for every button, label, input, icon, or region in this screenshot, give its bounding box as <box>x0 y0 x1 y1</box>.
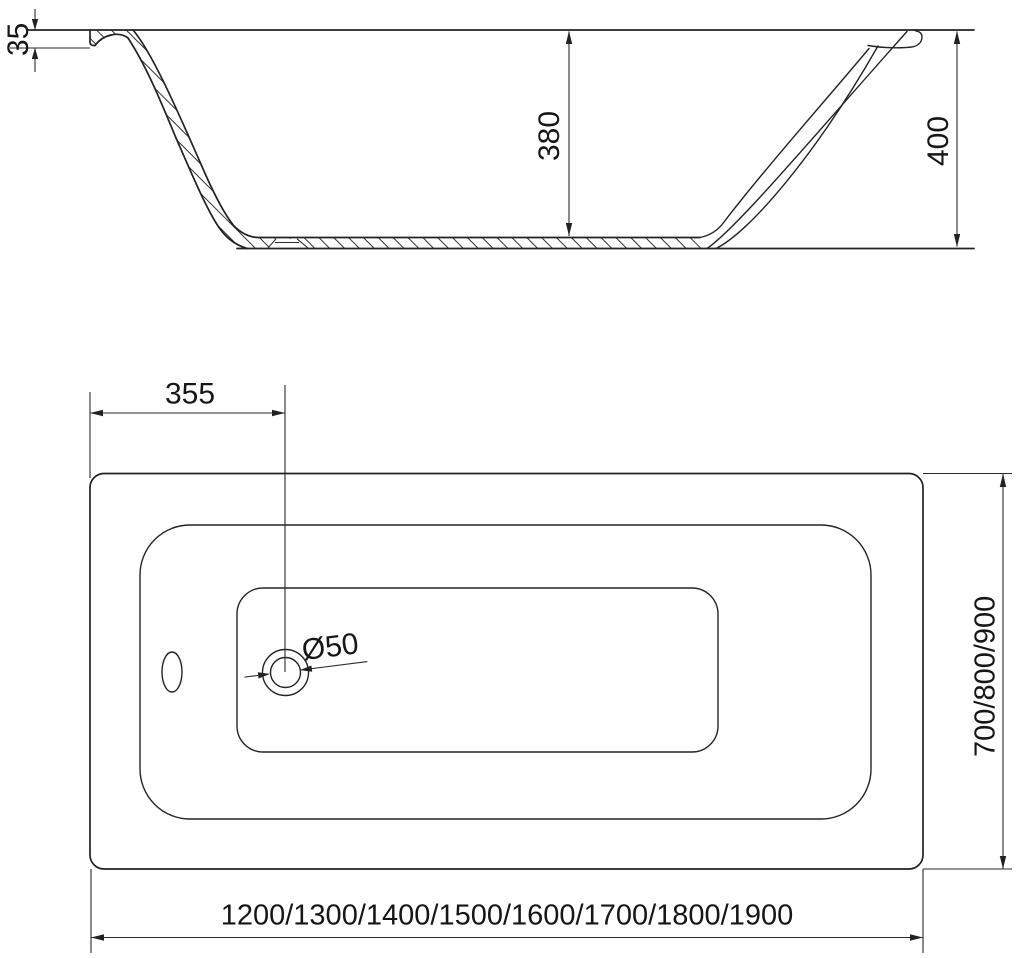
dim-35-label: 35 <box>2 23 35 56</box>
tub-inner-rim <box>140 525 871 819</box>
dimension-overall-height: 400 <box>922 31 960 247</box>
dimension-rim-lip: 35 <box>2 9 38 72</box>
dimension-length-variants: 1200/1300/1400/1500/1600/1700/1800/1900 <box>91 869 923 953</box>
dim-diameter-label: Ø50 <box>300 627 360 667</box>
dim-length-label: 1200/1300/1400/1500/1600/1700/1800/1900 <box>221 900 794 932</box>
right-wall-line-b <box>707 32 907 249</box>
drawing-canvas: 35 380 400 <box>0 0 1024 958</box>
dimension-drain-diameter: Ø50 <box>240 626 368 680</box>
tub-outer-rim <box>90 474 923 870</box>
dimension-inner-depth: 380 <box>533 31 572 236</box>
dim-380-label: 380 <box>533 111 566 161</box>
technical-drawing: 35 380 400 <box>0 0 1024 958</box>
bathtub-top-plan: 355 Ø50 700/800/900 1200/1300/1400/1500/… <box>90 378 1012 954</box>
bathtub-side-section: 35 380 400 <box>2 9 974 249</box>
tub-shell-hatching <box>90 30 707 249</box>
dim-width-label: 700/800/900 <box>970 596 1002 757</box>
dimension-width-variants: 700/800/900 <box>923 474 1012 870</box>
dim-400-label: 400 <box>922 116 955 166</box>
right-wall-line-a <box>700 49 869 238</box>
dim-355-label: 355 <box>165 378 215 411</box>
overflow-hole <box>162 652 182 692</box>
